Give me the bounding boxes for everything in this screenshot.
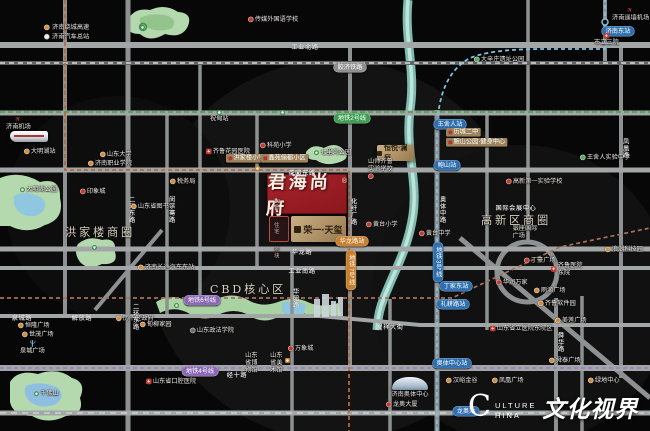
metro-station-pill: 华龙路站 [335,236,368,247]
poi-dot-icon [116,316,122,322]
school-marker: 黄台中学 [419,230,451,237]
school-marker-label: 黄台小学 [373,221,398,228]
trademark-icon: ® [342,178,347,185]
airport-marker-label: 济南遥墙机场 [612,14,649,21]
poi-marker: 税务局 [170,178,195,185]
poi-marker: 绿地中心 [588,377,620,384]
metro-pill: 华龙路站 [335,236,368,247]
metro-station-icon [280,110,285,115]
road-label-label: 花园东路 [288,170,315,177]
park-pin: 七里河公园 [314,149,351,156]
airport-marker: ✈济南遥墙机场 [612,7,649,22]
park-pin-icon [314,150,319,155]
railway-pill: 胶济铁路 [333,62,366,73]
spring-plaza-icon: 泉城广场 [20,340,45,355]
road-label: 发祥大街 [376,324,403,331]
district-label: 高新区商圈 [481,214,551,227]
poi-dot-icon [474,57,480,63]
school-marker-label: 山师齐鲁实验学校 [368,158,393,173]
poi-dot-icon [100,152,106,158]
poi-marker-label: 恒隆广场 [25,322,50,329]
metro-station-pill: 鲍山站 [433,160,460,171]
poi-marker: 齐鲁软件园 [538,300,576,307]
poi-marker: 华润万家 [496,279,528,286]
poi-marker-label: 万象城 [295,345,314,352]
metro-station-marker-label: 祝甸站 [210,116,229,123]
school-marker-label: 黄台中学 [426,230,451,237]
poi-marker-label: 凤凰广场 [499,377,524,384]
poi-marker: 浪潮科技园 [605,246,643,253]
poi-dot-icon [170,179,176,185]
park-pin [92,245,97,250]
poi-marker: 凤凰广场 [492,377,524,384]
road-label: 花园东路 [288,170,315,177]
park-pin-icon [92,245,97,250]
metro-pill: 奥体中心站 [432,358,472,369]
road-label: 解放路 [72,315,92,322]
park-pin: 大明湖公园 [20,186,57,193]
building-photo-label: 山东省美术馆 [270,352,284,374]
building-photo: 山东省美术馆 [266,351,288,387]
school-icon [448,140,452,144]
location-map: 济南绕城高速 济南汽车总站 君海尚府 ® 13号住宅地块 荣一·天玺 恒悦·澜庭… [0,0,650,431]
tan-tag: 鑫苑俪都小区 [261,154,308,163]
legend-item: 济南绕城高速 [44,24,89,31]
poi-marker-label: 大明湖站 [31,148,56,155]
metro-station-icon [285,358,290,363]
poi-dot-icon [18,323,24,329]
road-label-label: 解放路 [72,315,92,322]
poi-dot-icon [555,318,561,324]
road-label: 工业北路 [291,44,318,51]
school-marker-label: 科苑小学 [267,142,292,149]
hospital-marker: +齐鲁医院东院 [551,262,583,277]
metro-pill: 地铁3号线 [433,242,444,282]
poi-marker: 济南长途汽车东站 [138,264,194,271]
hospital-marker: +山东省立医院东院区 [490,325,553,332]
poi-marker-label: 美莲广场 [562,317,587,324]
parcel-line: 13号 [274,198,284,211]
watermark-line1: ULTURE [495,401,536,410]
poi-marker: 美莲广场 [555,317,587,324]
road-label: 二环东路 [131,303,138,330]
poi-marker-label: 华润万家 [503,279,528,286]
hospital-marker-label: 山东省口腔医院 [153,378,196,385]
road-label-label: 经十路 [227,372,247,379]
legend-label: 济南汽车总站 [52,33,89,40]
school-marker-label: 传媒外国语学校 [255,16,298,23]
road-label-label: 工业北路 [291,44,318,51]
caption-wrap: 银座国际广场 [505,225,545,249]
poi-tag-label: 鲍山公园·健身中心 [453,139,505,146]
poi-dot-icon [260,143,266,149]
poi-marker: 恒隆广场 [18,322,50,329]
metro-pill: 丁家东站 [439,281,472,292]
parcel-line: 地块 [274,246,284,259]
metro-station-icon [285,358,290,363]
park-pin-label: 七里河公园 [320,149,351,156]
metro-station-pill: 奥体中心站 [432,358,472,369]
poi-marker-label: 山东政法学院 [197,327,234,334]
poi-marker-label: 税务局 [177,178,196,185]
legend-item: 济南汽车总站 [44,33,89,40]
district-label: 洪家楼商圈 [65,226,135,239]
bus-station-dot-icon [44,34,50,40]
poi-label-label: 国际会展中心 [496,205,537,212]
road-label: 工业南路 [288,268,315,275]
metro-pill: 礼耕路站 [436,299,469,310]
park-pin-icon [140,25,145,30]
poi-marker-label: 舜泰广场 [556,357,581,364]
metro-line-pill: 地铁7号线 [346,250,357,290]
poi-marker-label: 印象城 [87,188,106,195]
poi-dot-icon [549,358,555,364]
school-marker: 高新第一实验学校 [506,178,562,185]
road-label-label: 化纤厂路 [349,198,356,225]
hospital-cross-icon: + [146,379,152,385]
highway-dot-icon [44,25,50,31]
park-pin-icon [34,391,39,396]
district-label-label: CBD核心区 [210,283,286,296]
metro-pill: 胶济铁路 [333,62,366,73]
park-pin [174,303,179,308]
road-label-label: 奥体中路 [438,196,445,223]
poi-dot-icon [368,173,374,179]
hospital-cross-icon: + [604,33,610,39]
park-pin-icon [20,187,25,192]
metro-station-icon [255,166,260,171]
metro-pill: 地铁6号线 [184,295,221,306]
stadium-dome-icon [392,377,428,390]
train-icon [10,131,48,142]
metro-station-pill: 丁家东站 [439,281,472,292]
poi-marker-label: 绿地中心 [595,377,620,384]
hospital-cross-icon: + [551,267,557,273]
metro-line-pill: 地铁3号线 [433,242,444,282]
poi-marker: 汉峪金谷 [446,377,478,384]
road-label: 经十路 [227,372,247,379]
park-pin: 千佛山 [34,390,59,397]
school-marker: 黄台小学 [366,221,398,228]
hospital-marker: +山东省口腔医院 [146,378,196,385]
road-label-label: 华阳路 [291,288,298,308]
poi-marker: 龙奥大厦 [386,401,418,408]
park-pin-label: 大明湖公园 [26,186,57,193]
hospital-marker-label: 市立三院 [594,39,619,46]
metro-pill: 地铁7号线 [346,250,357,290]
watermark-latin: ULTURE HINA [495,401,536,420]
parcel-line: 住宅 [274,222,284,235]
poi-marker-label: 大辛庄遗址公园 [481,56,524,63]
poi-marker: 山东政法学院 [190,327,234,334]
school-icon [448,130,452,134]
tan-tag: 历城二中 [446,128,481,137]
poi-dot-icon [80,189,86,195]
watermark-line2: HINA [495,411,536,420]
residence-tag: 鑫苑俪都小区 [261,154,308,163]
poi-marker: 甸柳家园 [140,321,172,328]
poi-marker-label: 山东省图书馆 [138,203,175,210]
poi-marker: 山东大学 [100,151,132,158]
parcel-box: 13号住宅地块 [269,216,289,242]
school-icon [263,156,267,160]
spring-sculpture-icon [30,340,36,347]
stadium-icon: 济南奥体中心 [380,377,440,403]
school-marker: 山师齐鲁实验学校 [368,158,393,179]
road-label: 奥体中路 [438,196,445,223]
poi-label: 国际会展中心 [496,205,537,212]
tan-tag: 鲍山公园·健身中心 [446,138,508,147]
hospital-marker-label: 齐鲁医院东院 [558,262,583,277]
metro-station-icon [280,110,285,115]
poi-marker: 舜泰广场 [549,357,581,364]
poi-dot-icon [419,231,425,237]
road-label: 华龙路 [292,249,312,256]
road-label-label: 华龙路 [292,249,312,256]
poi-dot-icon [248,17,254,23]
metro-pill: 地铁2号线 [334,113,371,124]
poi-marker: 大辛庄遗址公园 [474,56,524,63]
poi-dot-icon [22,332,28,338]
watermark-chinese: 文化视界 [542,390,638,424]
map-legend: 济南绕城高速 济南汽车总站 [44,24,89,40]
park-pin-icon [174,303,179,308]
poi-dot-icon [588,378,594,384]
metro-station-icon [217,110,222,115]
poi-marker-label: 世茂广场 [29,331,54,338]
road-label: 舜华路 [556,332,563,352]
stadium-icon-label: 济南奥体中心 [391,391,428,398]
poi-tag: 鲍山公园·健身中心 [446,138,508,147]
building-photo: 山东省博物馆 [241,351,263,387]
school-tag: 历城二中 [446,128,481,137]
caption-wrap: 山东省博物馆 [241,352,263,387]
district-label: CBD核心区 [210,283,286,296]
poi-marker: 印象城 [80,188,105,195]
school-tag-label: 历城二中 [453,129,478,136]
hospital-marker-label: 山东省立医院东院区 [497,325,553,332]
poi-marker: 济南职业学院 [88,160,132,167]
poi-dot-icon [88,161,94,167]
residence-tag-label: 鑫苑俪都小区 [268,155,305,162]
airport-marker: ✈济南机场 [6,116,31,131]
watermark-c: C [468,394,491,420]
poi-marker-label: 雨滴广场 [541,287,566,294]
metro-pill: 地铁4号线 [182,366,219,377]
poi-marker: 雨滴广场 [534,287,566,294]
road-label-label: 二环东路 [131,303,138,330]
poi-dot-icon [534,288,540,294]
school-marker: 传媒外国语学校 [248,16,298,23]
road-label-label: 工业南路 [288,268,315,275]
legend-label: 济南绕城高速 [52,24,89,31]
poi-dot-icon [446,378,452,384]
road-label-label: 舜华路 [556,332,563,352]
school-marker: 科苑小学 [260,142,292,149]
airport-marker-label: 济南机场 [6,123,31,130]
metro-pill: 鲍山站 [433,160,460,171]
metro-station-pill: 礼耕路站 [436,299,469,310]
poi-marker-label: 济南职业学院 [95,160,132,167]
poi-dot-icon [24,149,30,155]
hospital-cross-icon: + [490,326,496,332]
road-label-label: 发祥大街 [376,324,403,331]
poi-marker-label: 济南长途汽车东站 [145,264,195,271]
park-pin [140,25,145,30]
hospital-marker: +市立三院 [594,33,619,47]
school-icon [228,156,232,160]
poi-dot-icon [190,328,196,334]
poi-marker: 世茂广场 [22,331,54,338]
hospital-cross-icon: + [206,149,212,155]
poi-dot-icon [496,280,502,286]
poi-dot-icon [138,265,144,271]
school-tag-label: 洪家楼小学 [233,155,264,162]
poi-dot-icon [580,155,586,161]
road-label: 凤凰路 [621,138,628,158]
poi-dot-icon [506,179,512,185]
metro-line-pill: 地铁4号线 [182,366,219,377]
poi-dot-icon [538,301,544,307]
poi-dot-icon [492,378,498,384]
tianxi-logo-icon [294,226,301,233]
metro-station-marker: 祝甸站 [210,110,229,123]
poi-dot-icon [386,402,392,408]
poi-dot-icon [605,247,611,253]
poi-dot-icon [140,322,146,328]
park-pin-label: 千佛山 [40,390,59,397]
poi-marker-label: 汉峪金谷 [453,377,478,384]
road-label-label: 凤凰路 [621,138,628,158]
poi-marker: 大明湖站 [24,148,56,155]
spring-plaza-icon-label: 泉城广场 [20,347,45,354]
poi-marker-label: 山东大学 [107,151,132,158]
poi-marker: 万象城 [288,345,313,352]
school-marker-label: 高新第一实验学校 [513,178,563,185]
poi-marker-label: 龙奥大厦 [393,401,418,408]
district-label-label: 高新区商圈 [481,214,551,227]
district-label-label: 洪家楼商圈 [65,226,135,239]
poi-marker-label: 齐鲁软件园 [545,300,576,307]
watermark: C ULTURE HINA 文化视界 [468,390,638,424]
poi-marker: 山东省图书馆 [131,203,175,210]
building-photo: 银座国际广场 [505,224,545,249]
metro-line-pill: 地铁6号线 [184,295,221,306]
metro-line-pill: 地铁2号线 [334,113,371,124]
road-label: 化纤厂路 [349,198,356,225]
lanting-logo-icon [377,151,382,156]
poi-dot-icon [524,258,530,264]
tianxi-name: 荣一·天玺 [303,223,342,236]
poi-dot-icon [288,346,294,352]
poi-dot-icon [366,222,372,228]
metro-station-icon [255,166,260,171]
poi-marker-label: 浪潮科技园 [612,246,643,253]
poi-marker-label: 甸柳家园 [147,321,172,328]
poi-dot-icon [131,204,137,210]
train-icon [10,131,48,142]
building-photo-label: 山东省博物馆 [245,352,259,374]
road-label: 华阳路 [291,288,298,308]
